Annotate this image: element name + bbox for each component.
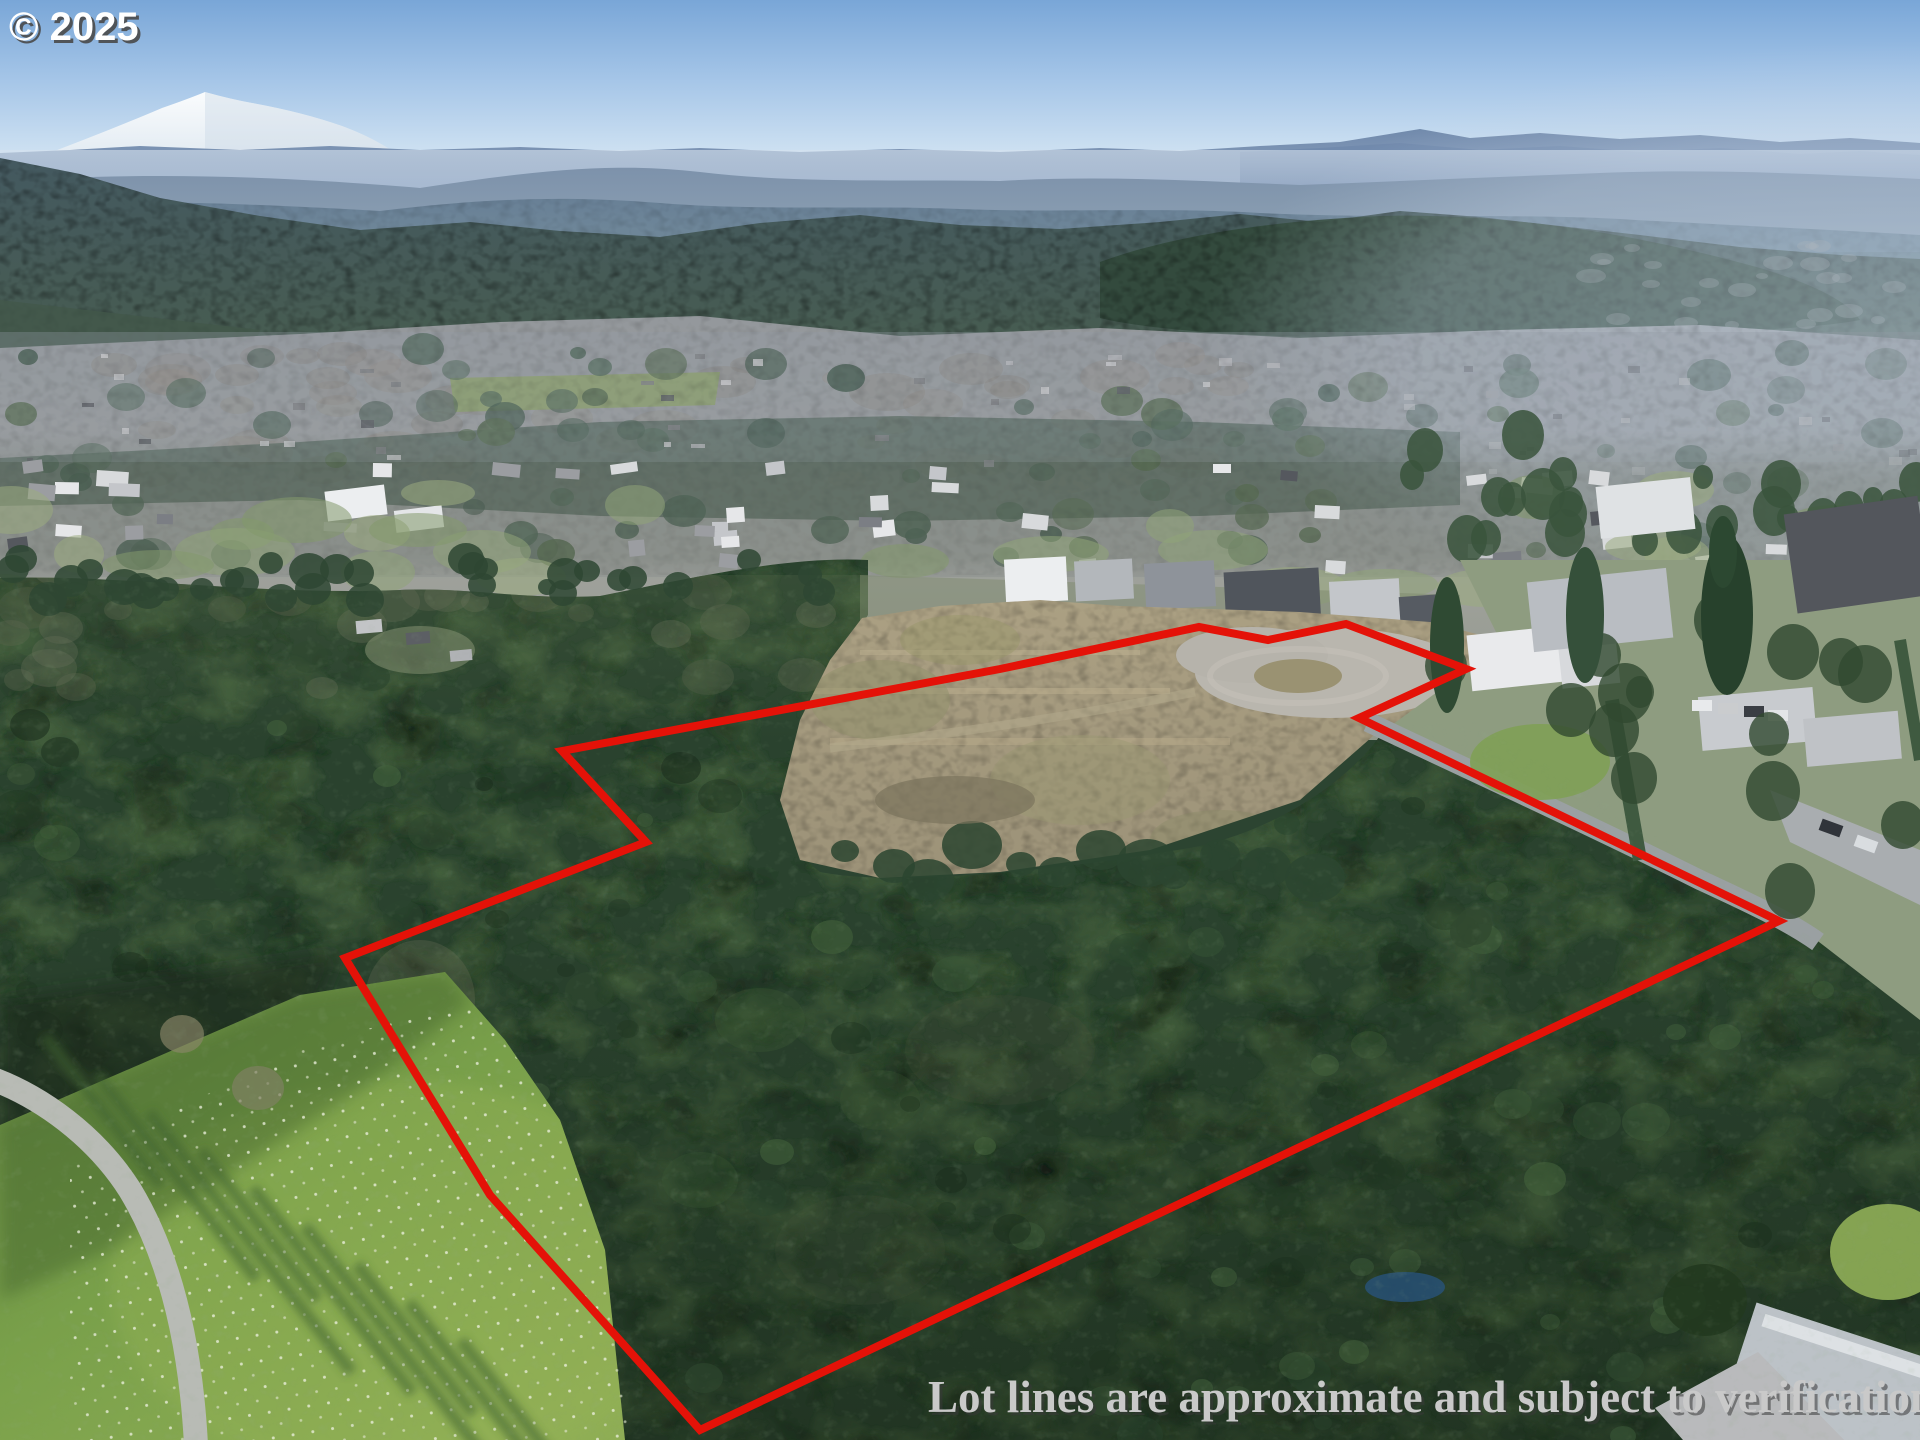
svg-text:Lot lines are approximate and: Lot lines are approximate and subject to… (928, 1372, 1920, 1422)
svg-text:© 2025: © 2025 (9, 5, 139, 49)
